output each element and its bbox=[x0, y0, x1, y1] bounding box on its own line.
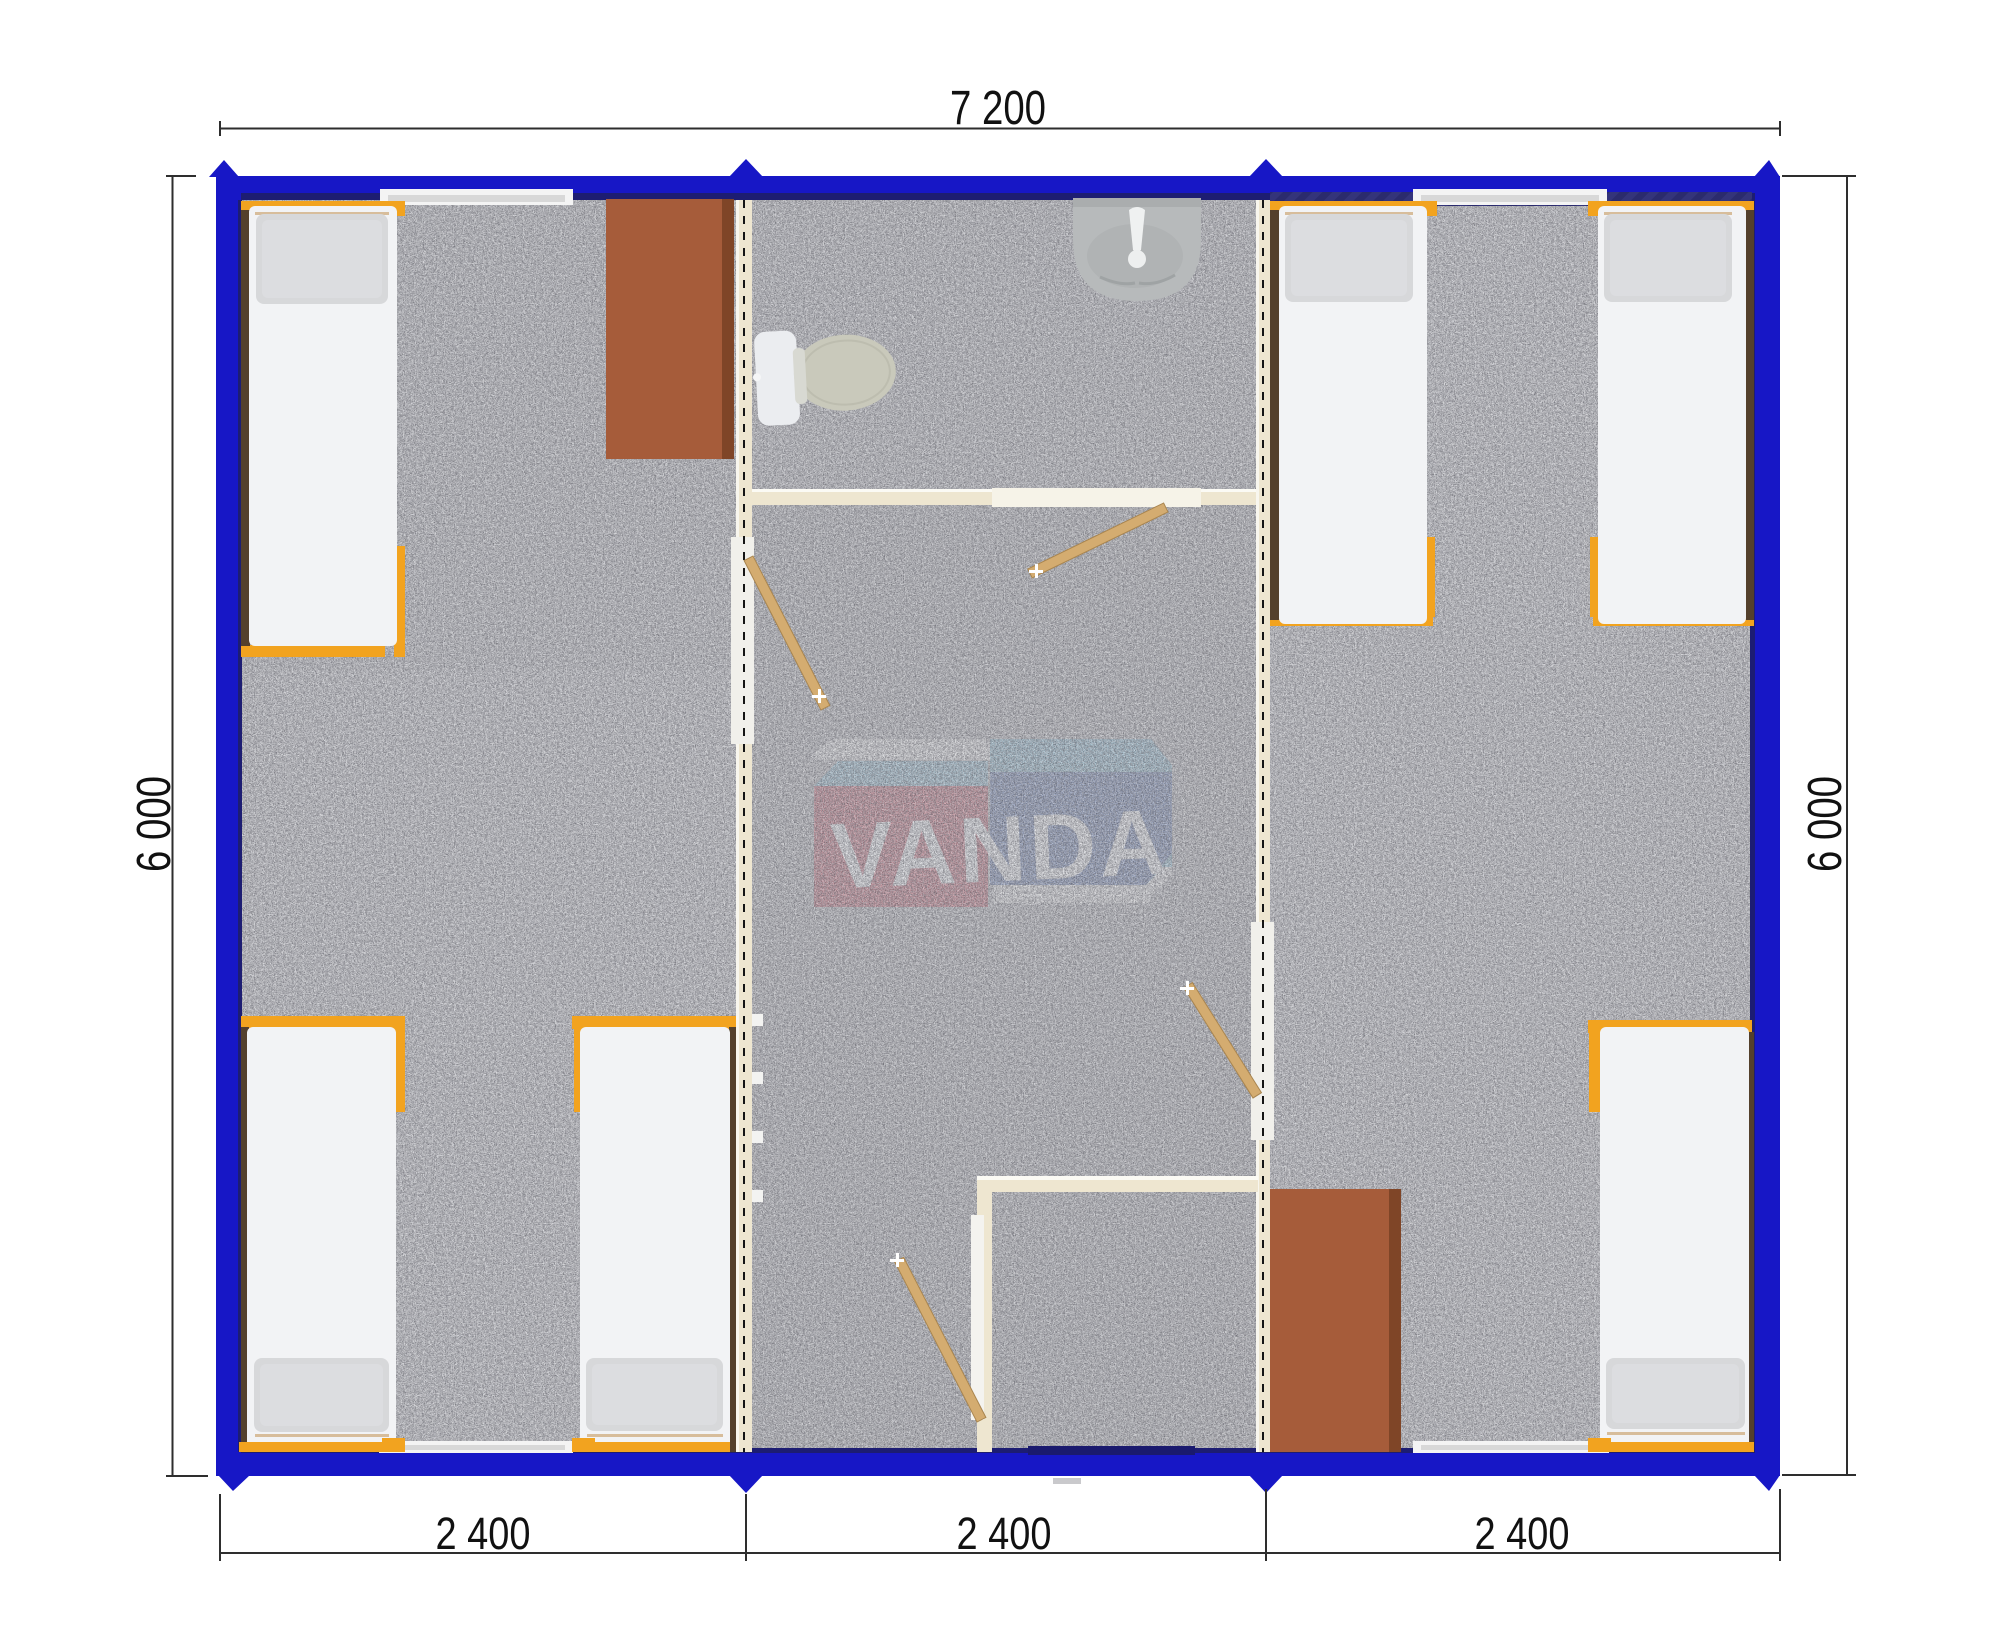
svg-text:2 400: 2 400 bbox=[436, 1508, 531, 1559]
svg-text:7 200: 7 200 bbox=[950, 82, 1046, 135]
svg-text:6 000: 6 000 bbox=[128, 776, 181, 872]
svg-text:6 000: 6 000 bbox=[1799, 776, 1852, 872]
svg-text:2 400: 2 400 bbox=[1475, 1508, 1570, 1559]
svg-text:2 400: 2 400 bbox=[957, 1508, 1052, 1559]
